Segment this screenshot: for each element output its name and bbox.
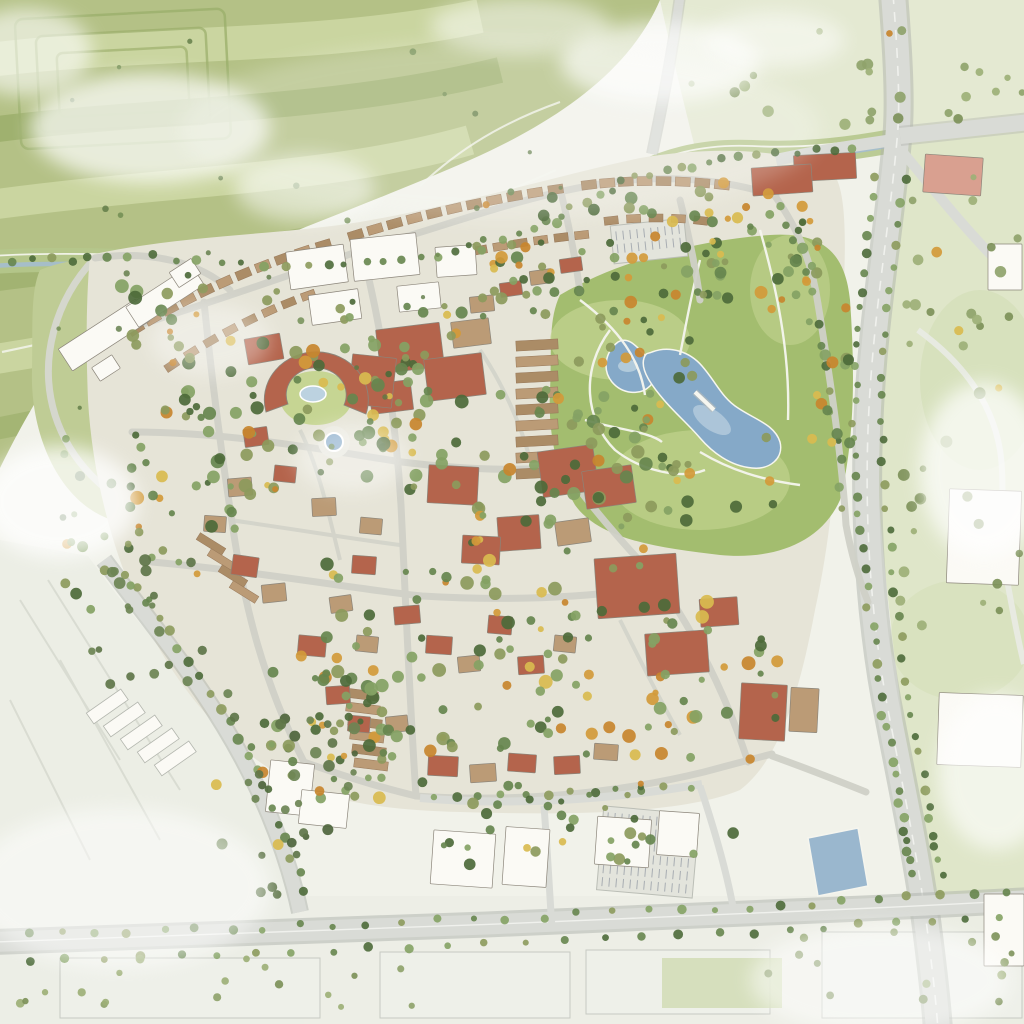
tree [493,609,500,616]
street-tree [859,544,868,553]
tree [478,246,487,255]
tree [954,326,963,335]
street-tree [259,262,269,272]
tree [474,703,482,711]
tree [127,463,137,473]
street-tree [567,788,574,795]
tree [96,646,103,653]
tree [765,476,775,486]
tree [572,681,580,689]
tree [382,394,387,399]
tree [455,395,469,409]
street-tree [213,952,220,959]
tree [959,341,968,350]
street-tree [802,268,810,276]
tree [350,299,356,305]
tree [713,291,722,300]
street-tree [854,382,861,389]
courtyard-pool [300,386,326,402]
street-tree [591,788,600,797]
building [350,233,420,282]
street-tree [892,771,899,778]
tree [720,663,728,671]
tree [802,276,809,283]
building [273,465,297,483]
street-tree [418,254,424,260]
tree [337,383,344,390]
tree [303,405,313,415]
street-tree [815,320,824,329]
tree [970,174,976,180]
tree [689,210,700,221]
street-tree [433,915,441,923]
tree [403,377,413,387]
street-tree [480,939,488,947]
street-tree [808,288,816,296]
tree [624,792,630,798]
tree [338,1004,344,1010]
tree [490,287,499,296]
tree [569,815,579,825]
tree [289,731,300,742]
tree [70,588,82,600]
tree [886,30,893,37]
street-tree [165,625,175,635]
tree [636,562,643,569]
tree [646,328,653,335]
tree [148,491,158,501]
tree [86,605,95,614]
tree [149,669,159,679]
tree [822,405,832,415]
street-tree [872,659,882,669]
tree [665,721,672,728]
building [430,830,496,888]
tree [544,650,553,659]
street-tree [882,723,890,731]
building [554,755,581,774]
tree [608,837,615,844]
street-tree [862,248,872,258]
tree [593,492,604,503]
tree [126,672,134,680]
tree [424,745,437,758]
tree [658,314,665,321]
street-tree [914,748,921,755]
tree [318,378,328,388]
tree [549,287,559,297]
tree [78,988,86,996]
townhouse-row-unit [516,371,558,383]
street-tree [297,920,304,927]
street-tree [894,221,901,228]
tree [613,853,625,865]
tree [571,611,581,621]
tree [299,828,308,837]
tree [310,747,321,758]
building [497,515,541,552]
tree [60,578,70,588]
tree [654,702,667,715]
tree [898,469,910,481]
street-tree [148,250,157,259]
tree [702,250,710,258]
tree [807,434,817,444]
tree [268,667,279,678]
tree [767,305,775,313]
tree [331,776,337,782]
tree [342,692,351,701]
street-tree [466,242,472,248]
tree [610,253,620,263]
street-tree [926,803,934,811]
street-tree [896,787,904,795]
tree [403,569,409,575]
tree [345,313,354,322]
tree [255,770,264,779]
tree [228,483,234,489]
street-tree [716,928,724,936]
tree [323,760,335,772]
tree [611,272,620,281]
tree [496,390,506,400]
tree [380,749,388,757]
street-tree [219,260,226,267]
tree [471,536,480,545]
tree [814,245,820,251]
tree [630,815,638,823]
tree [322,824,333,835]
tree [479,450,489,460]
street-tree [47,253,56,262]
street-tree [877,711,886,720]
street-tree [877,374,885,382]
tree [658,599,671,612]
tree [155,304,167,316]
tree [149,602,155,608]
tree [598,358,608,368]
tree [595,313,605,323]
street-tree [398,919,405,926]
tree [1014,234,1022,242]
tree [527,720,535,728]
tree [420,351,429,360]
tree [725,216,731,222]
street-tree [285,854,294,863]
tree [142,459,149,466]
tree [162,288,173,299]
tree [612,463,623,474]
tree [409,1003,415,1009]
tree [681,265,693,277]
tree [536,587,547,598]
tree [808,262,816,270]
tree [684,468,695,479]
tree [625,274,633,282]
street-tree [930,842,938,850]
tree [699,677,705,683]
tree [294,413,306,425]
street-tree [380,258,387,265]
tree [150,592,158,600]
tree [297,317,304,324]
street-tree [499,236,507,244]
tree [827,438,836,447]
tree [661,670,670,679]
street-tree [877,418,884,425]
street-tree [901,677,909,685]
tree [377,707,388,718]
tree [799,218,807,226]
street-tree [259,927,266,934]
street-tree [516,230,522,236]
street-tree [330,949,337,956]
tree [310,724,320,734]
tree [266,275,271,280]
tree [906,341,913,348]
tree [136,443,145,452]
tree [359,372,372,385]
tree [643,416,650,423]
tree [245,779,253,787]
street-tree [865,583,873,591]
tree [131,340,141,350]
tree [578,248,585,255]
tree [421,295,425,299]
tree [583,750,590,757]
street-tree [839,505,846,512]
tree [680,242,691,253]
tree [472,564,482,574]
tree [118,212,124,218]
tree [620,470,633,483]
tree [435,253,439,257]
tree [865,68,873,76]
tree [831,428,842,439]
street-tree [870,193,878,201]
tree [417,673,426,682]
tree [913,255,924,266]
street-tree [891,264,898,271]
tree [639,457,653,471]
tree [194,570,201,577]
tree [156,471,168,483]
street-tree [444,942,451,949]
tree [672,460,681,469]
tree [351,973,357,979]
tree [246,376,257,387]
tree [132,431,139,438]
street-tree [848,144,857,153]
tree [658,463,666,471]
tree [592,455,604,467]
street-tree [102,253,111,262]
tree [520,452,529,461]
tree [294,376,302,384]
tree [186,408,193,415]
tree [420,394,433,407]
tree [603,721,615,733]
tree [623,513,632,522]
tree [766,242,772,248]
street-tree [881,505,888,512]
tree [522,291,530,299]
street-tree [905,694,911,700]
tree [375,679,388,692]
tree [441,303,447,309]
street-tree [26,957,35,966]
tree [320,557,333,570]
tree [486,825,495,834]
tree [105,679,115,689]
tree [564,547,571,554]
street-tree [572,908,579,915]
tree [909,197,917,205]
street-tree [891,241,900,250]
street-tree [1003,889,1011,897]
building [789,687,819,732]
tree [392,671,404,683]
tree [553,393,564,404]
building [359,517,382,535]
street-tree [870,173,879,182]
building [502,827,550,888]
tree [538,239,545,246]
street-tree [500,916,509,925]
street-tree [837,896,846,905]
tree [1005,312,1014,321]
tree [585,634,592,641]
tree [447,331,456,340]
tree [536,686,545,695]
tree [807,218,814,225]
tree [639,602,650,613]
tree [689,710,702,723]
street-tree [341,261,347,267]
tree [573,409,583,419]
street-tree [172,644,181,653]
tree [371,378,385,392]
street-tree [912,733,919,740]
tree [335,609,348,622]
tree [325,992,331,998]
tree [755,640,767,652]
tree [865,116,874,125]
tree [411,483,418,490]
street-tree [325,260,334,269]
tree [464,844,470,850]
tree [536,391,548,403]
tree [182,676,192,686]
tree [187,39,192,44]
tree [192,481,201,490]
street-tree [895,612,904,621]
tree [247,743,255,751]
building [554,518,591,546]
street-tree [906,856,914,864]
tree [594,407,602,415]
tree [762,433,771,442]
tree [586,792,592,798]
tree [288,444,298,454]
tree [650,231,660,241]
street-tree [787,926,794,933]
street-tree [854,326,860,332]
tree [897,26,906,35]
street-tree [892,918,900,926]
tree [995,266,1006,277]
tree [655,747,668,760]
street-tree [712,907,718,913]
tree [747,223,754,230]
tree [78,406,82,410]
tree [365,774,372,781]
street-tree [870,622,879,631]
tree [526,795,534,803]
tree [641,426,648,433]
tree [671,728,678,735]
tree [813,391,821,399]
tree [567,487,580,500]
tree [410,418,423,431]
tree [506,645,514,653]
tree [645,724,652,731]
street-tree [887,527,894,534]
tree [350,792,359,801]
tree [243,955,250,962]
tree [460,576,474,590]
tree [551,669,563,681]
townhouse-row-unit [516,339,558,351]
tree [673,372,685,384]
tree [862,59,873,70]
tree [648,633,660,645]
tree [56,326,61,331]
tree [906,501,917,512]
tree [509,277,517,285]
tree [363,627,372,636]
tree [520,242,530,252]
tree [213,993,221,1001]
townhouse-row-unit [516,355,558,367]
street-tree [888,543,897,552]
street-tree [882,331,888,337]
tree [659,289,669,299]
tree [618,523,624,529]
street-tree [405,944,414,953]
tree [412,363,424,375]
tree [841,303,850,312]
tree [685,336,694,345]
townhouse-row-unit [554,233,569,243]
tree [417,777,427,787]
street-tree [69,257,77,265]
tree [447,741,458,752]
tree [397,965,404,972]
tree [258,852,265,859]
tree [275,719,286,730]
tree [730,501,742,513]
tree [503,781,513,791]
tree [287,838,297,848]
cloud-wash [150,304,270,376]
tree [593,423,605,435]
tree [322,669,330,677]
tree [727,827,739,839]
street-tree [867,215,874,222]
tree [523,844,531,852]
tree [441,842,447,848]
